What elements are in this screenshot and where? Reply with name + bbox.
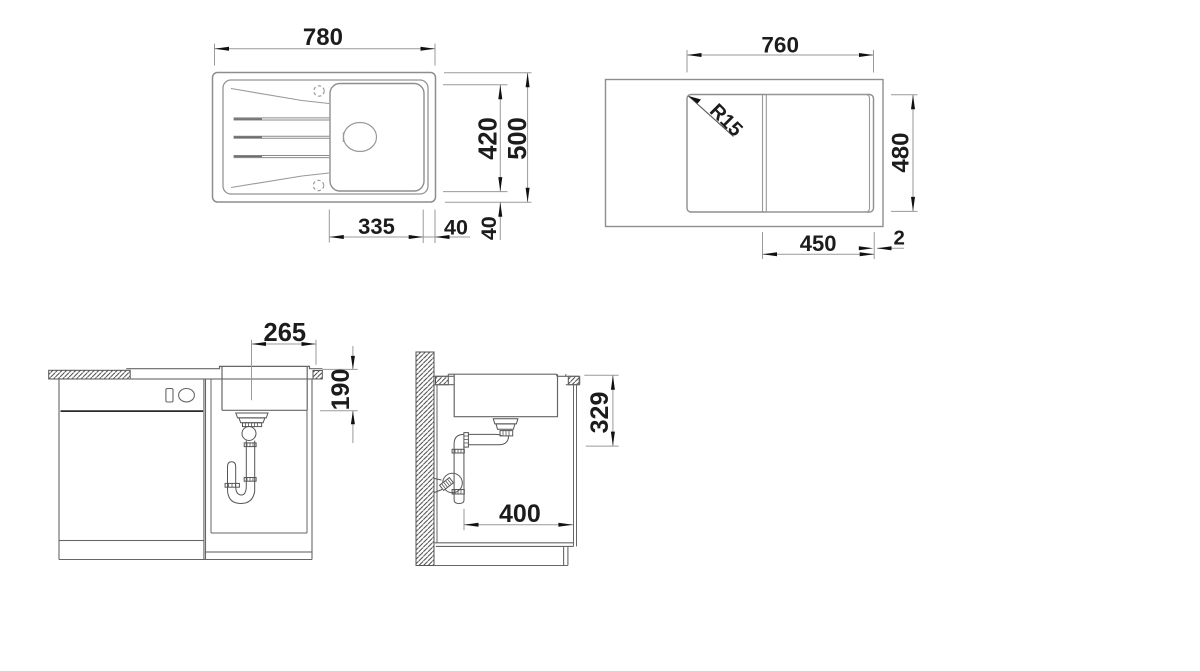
svg-text:480: 480 bbox=[888, 133, 915, 173]
svg-text:40: 40 bbox=[477, 216, 501, 240]
svg-text:400: 400 bbox=[499, 500, 541, 528]
svg-text:420: 420 bbox=[475, 117, 503, 160]
svg-text:780: 780 bbox=[303, 24, 343, 51]
svg-text:329: 329 bbox=[586, 392, 614, 434]
svg-text:40: 40 bbox=[444, 215, 468, 239]
svg-text:265: 265 bbox=[264, 319, 307, 347]
svg-text:2: 2 bbox=[893, 226, 904, 249]
svg-text:335: 335 bbox=[358, 214, 395, 239]
svg-text:450: 450 bbox=[800, 231, 837, 256]
svg-text:760: 760 bbox=[761, 32, 799, 57]
svg-text:500: 500 bbox=[504, 117, 532, 160]
svg-text:190: 190 bbox=[327, 369, 355, 411]
